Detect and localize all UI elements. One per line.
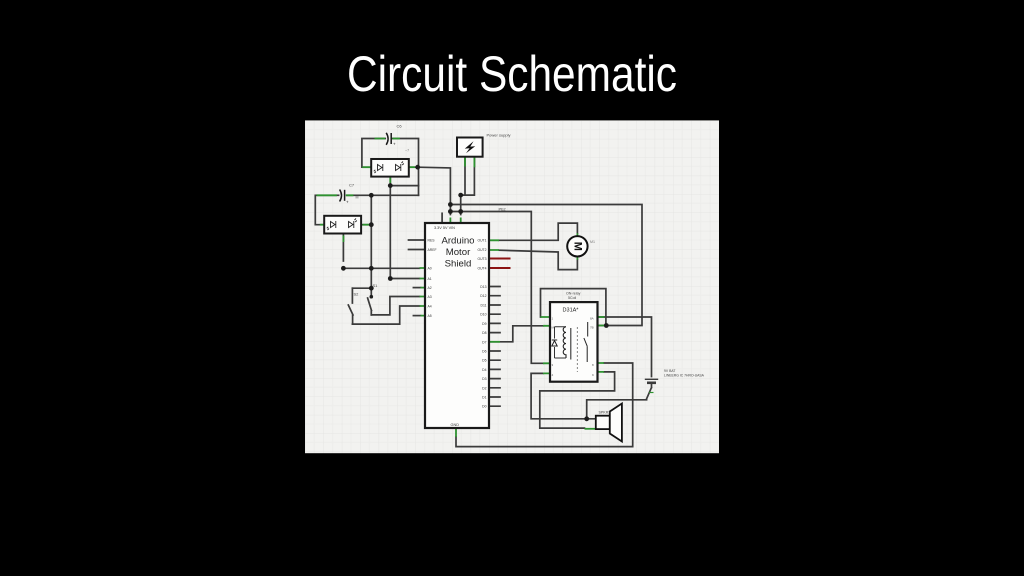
svg-text:Pb2: Pb2 <box>499 207 507 212</box>
svg-text:A2: A2 <box>428 286 432 290</box>
svg-text:5Coil: 5Coil <box>568 296 576 300</box>
svg-text:D12: D12 <box>480 294 486 298</box>
svg-text:RES: RES <box>428 239 436 243</box>
svg-text:A3: A3 <box>428 295 432 299</box>
svg-text:S2: S2 <box>354 292 360 297</box>
svg-text:+: + <box>346 200 349 205</box>
svg-text:D4: D4 <box>482 368 486 372</box>
svg-text:Arduino: Arduino <box>441 236 474 247</box>
svg-text:OUT2: OUT2 <box>477 248 486 252</box>
svg-text:C6: C6 <box>397 124 403 129</box>
svg-text:M1: M1 <box>590 240 595 244</box>
svg-text:LINEERG IC 7HRO-UASA: LINEERG IC 7HRO-UASA <box>664 374 705 378</box>
svg-text:D3: D3 <box>482 377 486 381</box>
svg-text:~7: ~7 <box>405 149 409 153</box>
svg-text:7B: 7B <box>590 326 594 330</box>
svg-text:D9: D9 <box>482 322 486 326</box>
svg-text:Power supply: Power supply <box>487 133 511 138</box>
svg-text:Circuit Schematic: Circuit Schematic <box>347 46 677 102</box>
svg-text:Shield: Shield <box>445 259 472 270</box>
svg-text:A1: A1 <box>428 277 432 281</box>
svg-text:AREF: AREF <box>428 248 437 252</box>
svg-text:D6: D6 <box>482 350 486 354</box>
svg-text:GND: GND <box>451 423 460 427</box>
svg-text:+: + <box>393 142 396 147</box>
svg-text:ON-relay: ON-relay <box>566 292 581 296</box>
svg-text:Motor: Motor <box>446 247 471 258</box>
svg-text:SPKR1: SPKR1 <box>599 411 611 415</box>
svg-text:D5: D5 <box>482 359 486 363</box>
svg-text:D13: D13 <box>480 285 486 289</box>
svg-text:D10: D10 <box>480 313 486 317</box>
svg-text:C7: C7 <box>349 183 355 188</box>
svg-text:M: M <box>356 196 359 200</box>
svg-text:A5: A5 <box>428 314 432 318</box>
svg-text:A0: A0 <box>428 267 432 271</box>
svg-text:D1: D1 <box>482 396 486 400</box>
svg-text:A4: A4 <box>428 305 432 309</box>
svg-text:OUT4: OUT4 <box>477 267 486 271</box>
svg-text:OUT3: OUT3 <box>477 257 486 261</box>
svg-text:D2: D2 <box>482 386 486 390</box>
svg-text:M: M <box>571 242 583 251</box>
svg-text:S1: S1 <box>373 283 379 288</box>
svg-text:D7: D7 <box>482 340 486 344</box>
svg-text:D31A*: D31A* <box>563 308 580 314</box>
svg-text:8A: 8A <box>590 317 594 321</box>
svg-text:9V BAT: 9V BAT <box>664 369 675 373</box>
svg-text:3.3V 5V VIN: 3.3V 5V VIN <box>434 226 455 230</box>
svg-text:D8: D8 <box>482 331 486 335</box>
svg-text:D11: D11 <box>481 304 487 308</box>
svg-text:OUT1: OUT1 <box>477 239 486 243</box>
svg-text:D0: D0 <box>482 405 486 409</box>
